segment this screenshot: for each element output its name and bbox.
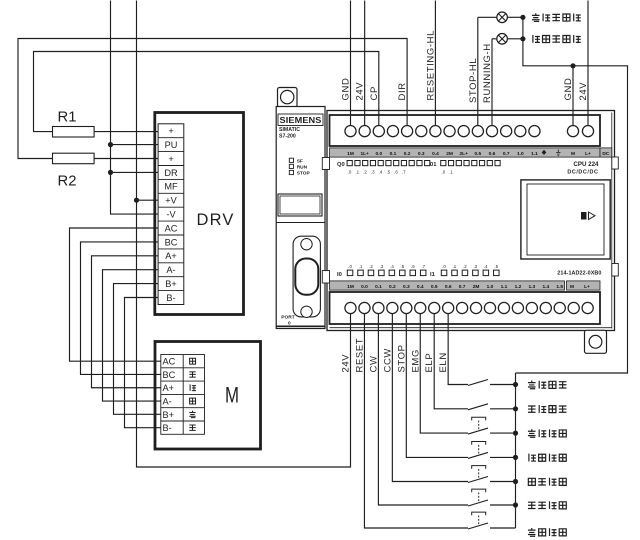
svg-text:I1: I1 bbox=[430, 272, 436, 278]
svg-text:.3: .3 bbox=[473, 264, 477, 269]
svg-text:.5: .5 bbox=[386, 169, 390, 174]
svg-text:B+: B+ bbox=[165, 279, 177, 289]
svg-text:GND: GND bbox=[563, 78, 574, 101]
svg-text:CPU 224: CPU 224 bbox=[573, 161, 599, 168]
svg-text:1.1: 1.1 bbox=[501, 284, 508, 290]
svg-text:2L+: 2L+ bbox=[459, 151, 468, 157]
svg-text:1.2: 1.2 bbox=[515, 284, 522, 290]
svg-text:R2: R2 bbox=[58, 172, 77, 189]
svg-text:DC/DC/DC: DC/DC/DC bbox=[567, 170, 598, 176]
svg-text:RUNNING-H: RUNNING-H bbox=[482, 43, 493, 103]
svg-text:SF: SF bbox=[297, 158, 303, 164]
svg-text:Q0: Q0 bbox=[337, 162, 345, 168]
svg-text:.1: .1 bbox=[449, 169, 453, 174]
svg-text:.6: .6 bbox=[394, 169, 398, 174]
svg-text:.3: .3 bbox=[371, 169, 375, 174]
svg-text:PORT: PORT bbox=[281, 314, 294, 320]
svg-text:A-: A- bbox=[166, 265, 175, 275]
svg-text:AC: AC bbox=[163, 357, 176, 367]
svg-text:0.1: 0.1 bbox=[375, 284, 382, 290]
svg-text:0.1: 0.1 bbox=[390, 151, 397, 157]
svg-text:MF: MF bbox=[164, 182, 178, 192]
svg-text:1M: 1M bbox=[347, 151, 354, 157]
svg-text:0.3: 0.3 bbox=[418, 151, 425, 157]
svg-text:0.2: 0.2 bbox=[404, 151, 411, 157]
svg-text:.4: .4 bbox=[484, 264, 488, 269]
svg-text:DR: DR bbox=[164, 168, 178, 178]
svg-text:B+: B+ bbox=[163, 410, 175, 420]
svg-text:0.7: 0.7 bbox=[459, 284, 466, 290]
svg-text:CCW: CCW bbox=[382, 348, 393, 373]
svg-text:SIMATIC: SIMATIC bbox=[279, 127, 300, 133]
svg-text:+: + bbox=[168, 126, 173, 136]
svg-text:0.6: 0.6 bbox=[489, 151, 496, 157]
svg-text:BC: BC bbox=[163, 370, 176, 380]
svg-text:ELP: ELP bbox=[424, 353, 435, 373]
svg-text:STOP: STOP bbox=[396, 344, 407, 372]
svg-text:STOP-HL: STOP-HL bbox=[468, 58, 479, 103]
svg-text:.3: .3 bbox=[380, 264, 384, 269]
svg-text:1.3: 1.3 bbox=[529, 284, 536, 290]
svg-text:DC: DC bbox=[602, 151, 609, 157]
svg-text:214-1AD22-0XB0: 214-1AD22-0XB0 bbox=[557, 271, 601, 277]
svg-text:1.5: 1.5 bbox=[556, 284, 563, 290]
svg-text:SIEMENS: SIEMENS bbox=[280, 116, 322, 125]
svg-text:01: 01 bbox=[430, 162, 437, 168]
svg-text:.0: .0 bbox=[442, 264, 446, 269]
svg-text:RESET: RESET bbox=[354, 338, 365, 373]
svg-text:A+: A+ bbox=[163, 383, 175, 393]
svg-text:0.6: 0.6 bbox=[445, 284, 452, 290]
svg-text:RUN: RUN bbox=[297, 165, 308, 171]
svg-text:0.2: 0.2 bbox=[389, 284, 396, 290]
svg-text:2M: 2M bbox=[473, 284, 480, 290]
svg-text:.2: .2 bbox=[463, 264, 467, 269]
svg-text:L+: L+ bbox=[585, 151, 591, 157]
svg-text:1.4: 1.4 bbox=[542, 284, 549, 290]
svg-text:+: + bbox=[168, 154, 173, 164]
svg-text:24V: 24V bbox=[355, 82, 366, 101]
svg-text:B-: B- bbox=[166, 293, 175, 303]
svg-text:0.4: 0.4 bbox=[417, 284, 424, 290]
svg-text:R1: R1 bbox=[58, 108, 77, 125]
svg-text:CW: CW bbox=[368, 355, 379, 372]
svg-text:+V: +V bbox=[165, 196, 177, 206]
svg-text:.5: .5 bbox=[401, 264, 405, 269]
svg-text:.5: .5 bbox=[494, 264, 498, 269]
svg-text:.0: .0 bbox=[348, 169, 352, 174]
svg-text:CP: CP bbox=[369, 86, 380, 100]
svg-text:1M: 1M bbox=[347, 284, 354, 290]
svg-text:.1: .1 bbox=[453, 264, 457, 269]
svg-text:1.0: 1.0 bbox=[487, 284, 494, 290]
svg-text:A+: A+ bbox=[165, 251, 177, 261]
svg-text:.1: .1 bbox=[359, 264, 363, 269]
svg-text:.1: .1 bbox=[355, 169, 359, 174]
svg-text:1.1: 1.1 bbox=[531, 151, 538, 157]
svg-text:STOP: STOP bbox=[297, 171, 311, 177]
svg-text:-V: -V bbox=[166, 210, 176, 220]
svg-text:L+: L+ bbox=[584, 284, 590, 290]
svg-text:.2: .2 bbox=[369, 264, 373, 269]
svg-text:RESETING-HL: RESETING-HL bbox=[425, 30, 436, 100]
svg-text:.7: .7 bbox=[421, 264, 425, 269]
svg-text:24V: 24V bbox=[578, 82, 589, 101]
svg-text:BC: BC bbox=[165, 237, 178, 247]
svg-text:M: M bbox=[570, 284, 574, 290]
svg-text:0.0: 0.0 bbox=[375, 151, 382, 157]
svg-text:M: M bbox=[225, 383, 239, 408]
svg-text:.6: .6 bbox=[411, 264, 415, 269]
svg-text:DRV: DRV bbox=[197, 211, 235, 229]
svg-text:0.0: 0.0 bbox=[361, 284, 368, 290]
svg-text:.2: .2 bbox=[363, 169, 367, 174]
svg-text:.4: .4 bbox=[390, 264, 394, 269]
svg-text:PU: PU bbox=[165, 140, 178, 150]
svg-text:0.3: 0.3 bbox=[403, 284, 410, 290]
svg-text:A-: A- bbox=[163, 396, 172, 406]
svg-text:M: M bbox=[571, 151, 575, 157]
svg-text:I0: I0 bbox=[337, 272, 342, 278]
svg-text:2M: 2M bbox=[446, 151, 453, 157]
svg-text:0.4: 0.4 bbox=[432, 151, 439, 157]
svg-text:24V: 24V bbox=[341, 354, 352, 373]
svg-text:0.5: 0.5 bbox=[431, 284, 438, 290]
svg-text:AC: AC bbox=[165, 223, 178, 233]
svg-text:.0: .0 bbox=[348, 264, 352, 269]
svg-text:S7-200: S7-200 bbox=[279, 134, 296, 140]
svg-text:.0: .0 bbox=[442, 169, 446, 174]
svg-text:0: 0 bbox=[288, 320, 291, 326]
svg-text:0.7: 0.7 bbox=[503, 151, 510, 157]
svg-text:B-: B- bbox=[163, 423, 172, 433]
svg-text:1L+: 1L+ bbox=[360, 151, 369, 157]
svg-text:.7: .7 bbox=[402, 169, 406, 174]
svg-text:ELN: ELN bbox=[438, 352, 449, 372]
svg-text:0.5: 0.5 bbox=[475, 151, 482, 157]
svg-text:DIR: DIR bbox=[397, 82, 408, 100]
svg-text:EMG: EMG bbox=[410, 349, 421, 372]
svg-text:.4: .4 bbox=[379, 169, 383, 174]
svg-text:GND: GND bbox=[341, 78, 352, 101]
svg-text:1.0: 1.0 bbox=[517, 151, 524, 157]
